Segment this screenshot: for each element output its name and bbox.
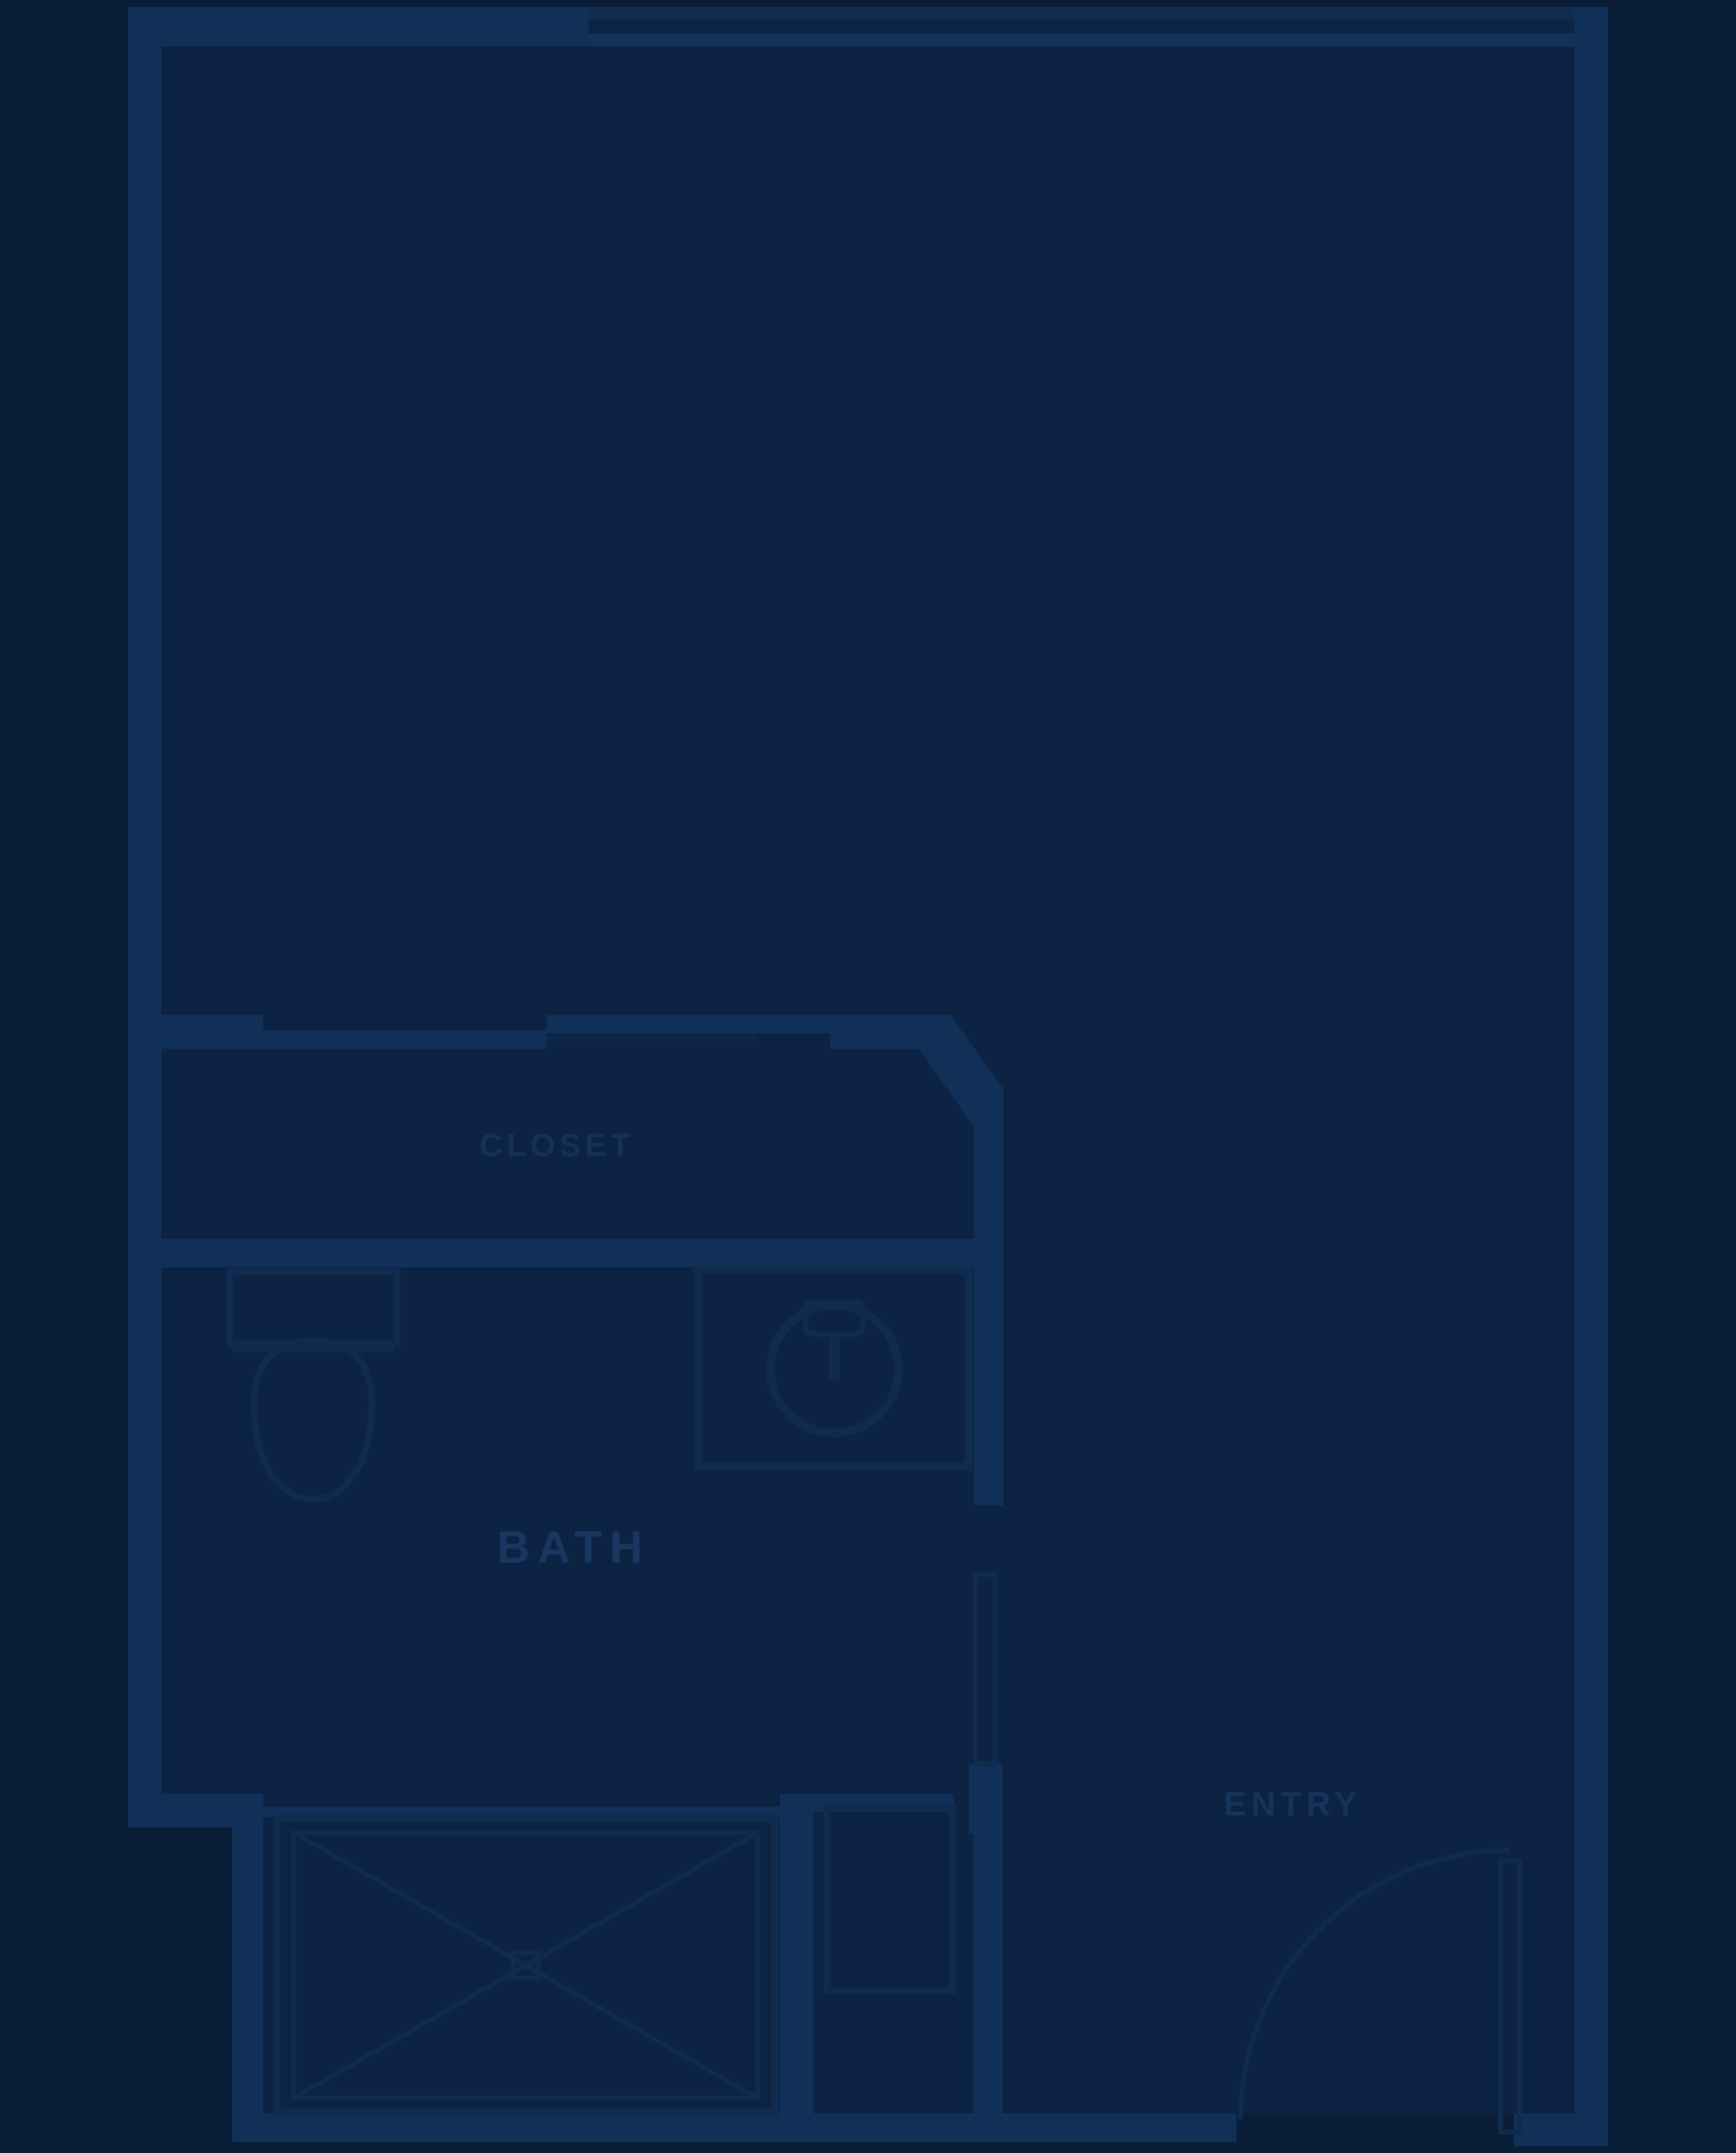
entry-door-swing (1241, 1850, 1520, 2132)
toilet (230, 1272, 397, 1500)
floor-plan: CLOSET BATH ENTRY (0, 0, 1736, 2153)
shower-box-x (277, 1818, 775, 2113)
toilet-tank (230, 1272, 397, 1344)
vanity-sink (698, 1270, 969, 1467)
entry-door-arc (1241, 1850, 1510, 2119)
toilet-bowl (254, 1341, 372, 1500)
bath-label: BATH (497, 1521, 650, 1574)
bath-door-leaf (976, 1574, 995, 1764)
entry-door-leaf (1500, 1861, 1520, 2132)
closet-chamfer-wall (919, 1015, 1003, 1127)
fixtures-layer (0, 0, 1736, 2153)
entry-label: ENTRY (1224, 1786, 1362, 1824)
utility-cabinet (827, 1808, 953, 1991)
closet-label: CLOSET (479, 1129, 634, 1165)
